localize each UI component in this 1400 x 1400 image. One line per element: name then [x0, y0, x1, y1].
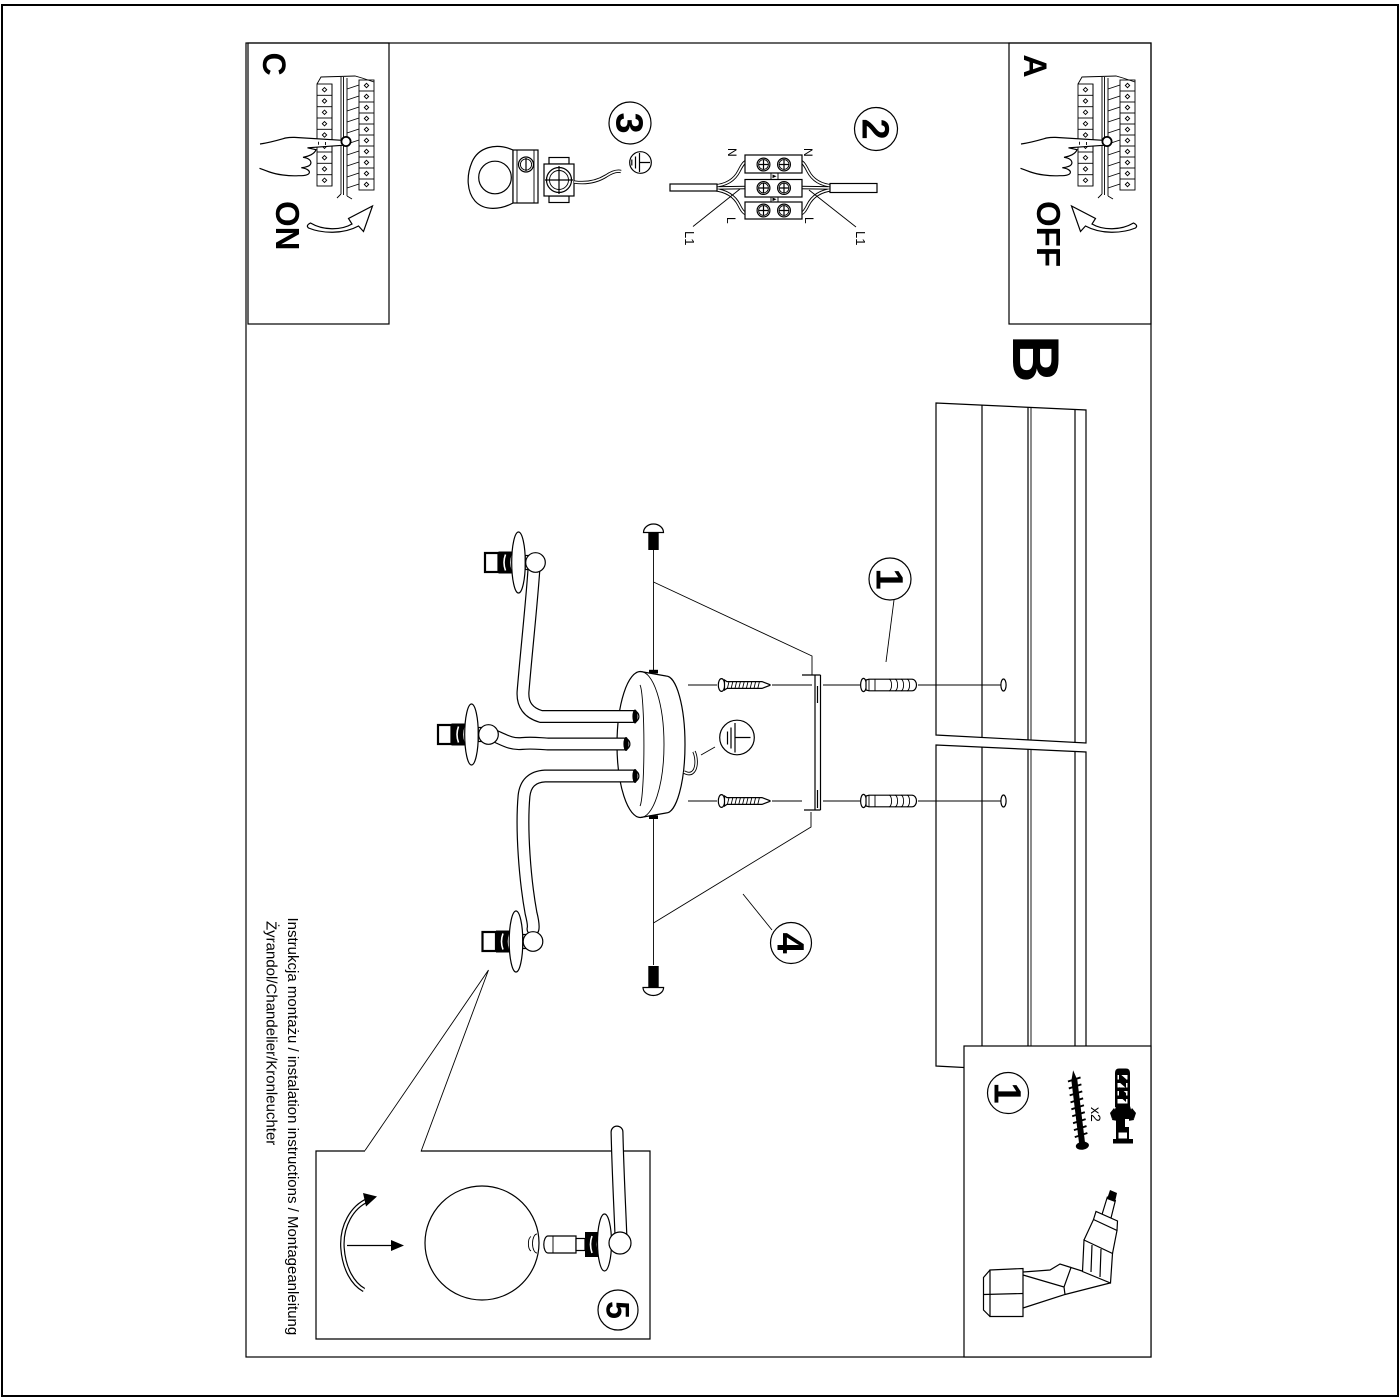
svg-text:L1: L1 — [682, 231, 697, 245]
svg-text:x2: x2 — [1088, 1107, 1104, 1122]
svg-text:Żyrandol/Chandelier/Kronleucht: Żyrandol/Chandelier/Kronleuchter — [263, 921, 281, 1145]
svg-text:L: L — [724, 217, 738, 224]
svg-text:L1: L1 — [853, 231, 868, 245]
svg-text:N: N — [801, 148, 815, 157]
svg-text:B: B — [999, 335, 1073, 383]
svg-text:C: C — [256, 53, 292, 76]
svg-text:5: 5 — [600, 1301, 636, 1319]
svg-text:ON: ON — [269, 201, 306, 251]
svg-text:OFF: OFF — [1030, 201, 1067, 267]
svg-text:1: 1 — [868, 568, 910, 589]
svg-text:4: 4 — [769, 932, 811, 953]
svg-text:3: 3 — [608, 112, 650, 133]
svg-text:N: N — [725, 148, 739, 157]
svg-text:2: 2 — [854, 118, 896, 139]
svg-text:L: L — [802, 217, 816, 224]
svg-text:Instrukcja montażu / instalati: Instrukcja montażu / instalation instruc… — [284, 918, 301, 1336]
svg-text:1: 1 — [986, 1082, 1028, 1103]
svg-text:A: A — [1017, 55, 1053, 78]
